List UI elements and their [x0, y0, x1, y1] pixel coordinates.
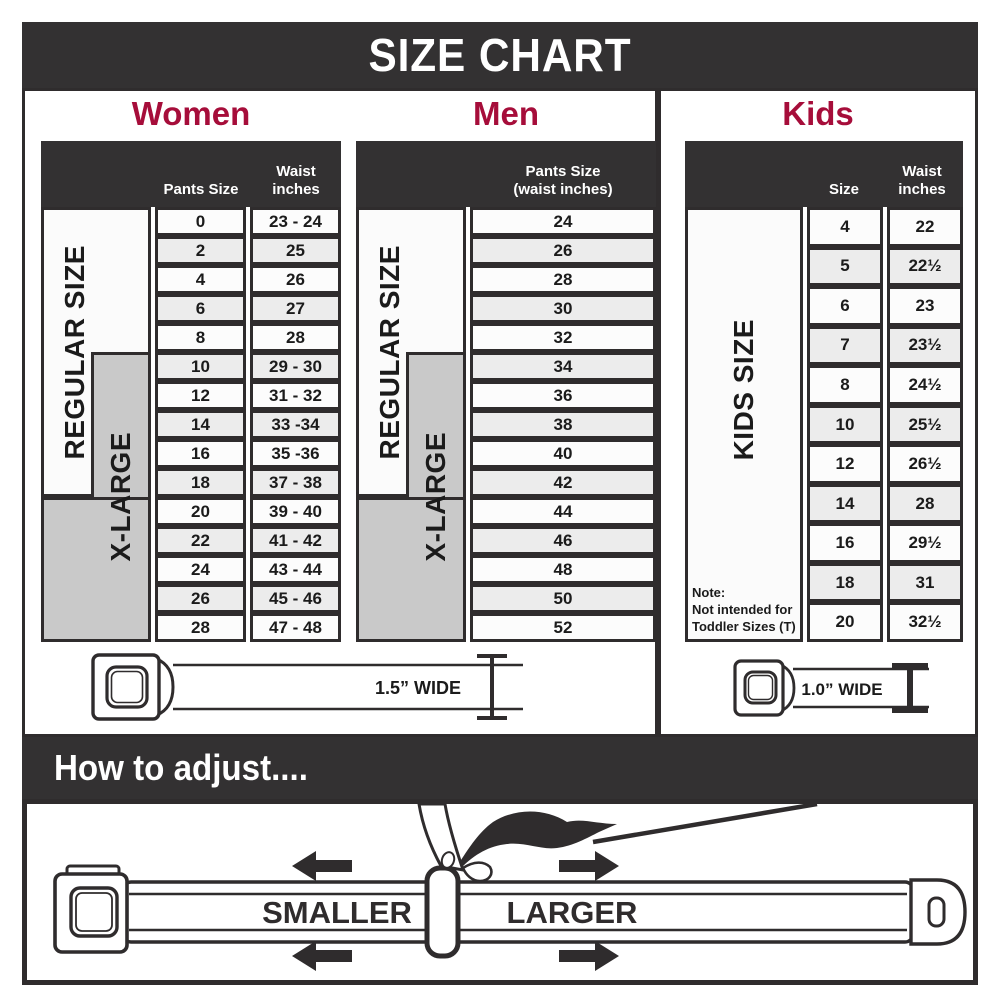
kids-table-header: Size Waist inches — [685, 141, 963, 207]
waist-cell: 35 -36 — [250, 439, 341, 468]
arrow-right-icon — [559, 851, 619, 881]
table-row: 38 — [470, 410, 656, 439]
pants-size-cell: 26 — [155, 584, 246, 613]
table-row: 50 — [470, 584, 656, 613]
size-chart-title-bar: SIZE CHART — [22, 22, 978, 88]
pants-size-cell: 48 — [470, 555, 656, 584]
waist-cell: 25½ — [887, 405, 963, 445]
men-table: Pants Size (waist inches) REGULAR SIZE X… — [356, 141, 656, 642]
men-regular-size-label: REGULAR SIZE — [374, 245, 406, 459]
table-row: 0 23 - 24 — [155, 207, 341, 236]
kids-panel: Kids Size Waist inches KIDS SIZE Note: N… — [658, 88, 978, 737]
belt-buckle-icon — [93, 655, 173, 719]
table-row: 7 23½ — [807, 326, 963, 366]
waist-cell: 29 - 30 — [250, 352, 341, 381]
waist-cell: 25 — [250, 236, 341, 265]
table-row: 12 31 - 32 — [155, 381, 341, 410]
larger-label: LARGER — [507, 895, 638, 930]
pants-size-cell: 12 — [155, 381, 246, 410]
women-table-body: 0 23 - 24 2 25 4 26 6 27 8 28 10 29 - 30 — [155, 207, 341, 642]
pants-size-cell: 4 — [155, 265, 246, 294]
smaller-label: SMALLER — [262, 895, 412, 930]
table-row: 12 26½ — [807, 444, 963, 484]
size-cell: 12 — [807, 444, 883, 484]
table-row: 22 41 - 42 — [155, 526, 341, 555]
waist-cell: 37 - 38 — [250, 468, 341, 497]
belt-buckle-icon — [735, 661, 794, 715]
table-row: 42 — [470, 468, 656, 497]
pants-size-cell: 38 — [470, 410, 656, 439]
size-cell: 16 — [807, 523, 883, 563]
table-row: 5 22½ — [807, 247, 963, 287]
kids-note: Note: Not intended for Toddler Sizes (T) — [692, 585, 801, 636]
pants-size-cell: 18 — [155, 468, 246, 497]
belt-strap — [173, 665, 523, 709]
kids-table: Size Waist inches KIDS SIZE Note: Not in… — [685, 141, 963, 642]
table-row: 28 47 - 48 — [155, 613, 341, 642]
table-row: 4 26 — [155, 265, 341, 294]
women-xlarge-label: X-LARGE — [105, 432, 137, 562]
waist-cell: 26½ — [887, 444, 963, 484]
table-row: 44 — [470, 497, 656, 526]
pants-size-cell: 8 — [155, 323, 246, 352]
waist-cell: 27 — [250, 294, 341, 323]
women-waist-header: Waist inches — [251, 163, 341, 201]
kids-waist-header: Waist inches — [885, 163, 959, 201]
table-row: 30 — [470, 294, 656, 323]
adjust-illustration: SMALLER LARGER — [27, 804, 973, 980]
women-regular-size-label: REGULAR SIZE — [59, 245, 91, 459]
men-size-bands: REGULAR SIZE X-LARGE — [356, 207, 466, 642]
pants-size-cell: 28 — [155, 613, 246, 642]
table-row: 28 — [470, 265, 656, 294]
pants-size-cell: 42 — [470, 468, 656, 497]
arrow-left-icon — [292, 851, 352, 881]
men-xlarge-label: X-LARGE — [420, 432, 452, 562]
table-row: 14 33 -34 — [155, 410, 341, 439]
women-table: Pants Size Waist inches REGULAR SIZE X-L… — [41, 141, 341, 642]
arrow-right-icon — [559, 941, 619, 971]
pants-size-cell: 46 — [470, 526, 656, 555]
waist-cell: 31 - 32 — [250, 381, 341, 410]
table-row: 6 27 — [155, 294, 341, 323]
adults-panel: Women Men Pants Size Waist inches REGULA… — [22, 88, 658, 737]
table-row: 14 28 — [807, 484, 963, 524]
size-chart-title: SIZE CHART — [368, 28, 631, 82]
pants-size-cell: 10 — [155, 352, 246, 381]
size-cell: 5 — [807, 247, 883, 287]
waist-cell: 23 — [887, 286, 963, 326]
how-to-adjust-bar: How to adjust.... — [22, 737, 978, 799]
size-cell: 8 — [807, 365, 883, 405]
pants-size-cell: 40 — [470, 439, 656, 468]
waist-cell: 41 - 42 — [250, 526, 341, 555]
waist-cell: 23 - 24 — [250, 207, 341, 236]
table-row: 52 — [470, 613, 656, 642]
table-row: 10 25½ — [807, 405, 963, 445]
men-table-body: 24 26 28 30 32 34 36 38 40 42 — [470, 207, 656, 642]
width-dimension-icon — [892, 663, 928, 713]
waist-cell: 23½ — [887, 326, 963, 366]
table-row: 24 — [470, 207, 656, 236]
table-row: 48 — [470, 555, 656, 584]
waist-cell: 47 - 48 — [250, 613, 341, 642]
pants-size-cell: 22 — [155, 526, 246, 555]
adult-belt-width-label: 1.5” WIDE — [375, 678, 461, 698]
pants-size-cell: 28 — [470, 265, 656, 294]
size-cell: 6 — [807, 286, 883, 326]
how-to-adjust-heading: How to adjust.... — [54, 747, 308, 789]
waist-cell: 22 — [887, 207, 963, 247]
table-row: 8 24½ — [807, 365, 963, 405]
belt-tip — [911, 880, 965, 944]
table-row: 6 23 — [807, 286, 963, 326]
kids-size-band: KIDS SIZE Note: Not intended for Toddler… — [685, 207, 803, 642]
waist-cell: 32½ — [887, 602, 963, 642]
waist-cell: 26 — [250, 265, 341, 294]
kids-belt-illustration: 1.0” WIDE — [729, 651, 964, 726]
men-table-header: Pants Size (waist inches) — [356, 141, 656, 207]
waist-cell: 31 — [887, 563, 963, 603]
waist-cell: 45 - 46 — [250, 584, 341, 613]
pants-size-cell: 32 — [470, 323, 656, 352]
size-cell: 7 — [807, 326, 883, 366]
belt-buckle-icon — [55, 866, 127, 952]
pants-size-cell: 26 — [470, 236, 656, 265]
kids-size-label: KIDS SIZE — [728, 319, 760, 460]
men-heading: Men — [356, 95, 656, 133]
kids-size-header: Size — [807, 181, 881, 200]
kids-heading: Kids — [661, 95, 975, 133]
kids-belt-width-label: 1.0” WIDE — [801, 680, 882, 699]
pants-size-cell: 44 — [470, 497, 656, 526]
table-row: 26 — [470, 236, 656, 265]
size-cell: 10 — [807, 405, 883, 445]
pants-size-cell: 50 — [470, 584, 656, 613]
table-row: 26 45 - 46 — [155, 584, 341, 613]
table-row: 46 — [470, 526, 656, 555]
pants-size-cell: 2 — [155, 236, 246, 265]
hand-illustration — [419, 804, 817, 881]
women-size-bands: REGULAR SIZE X-LARGE — [41, 207, 151, 642]
pants-size-cell: 30 — [470, 294, 656, 323]
size-chart-page: SIZE CHART Women Men Pants Size Waist in… — [0, 0, 1000, 1000]
size-cell: 18 — [807, 563, 883, 603]
pants-size-cell: 52 — [470, 613, 656, 642]
table-row: 32 — [470, 323, 656, 352]
belt-slider — [427, 868, 458, 956]
waist-cell: 22½ — [887, 247, 963, 287]
pants-size-cell: 6 — [155, 294, 246, 323]
pants-size-cell: 34 — [470, 352, 656, 381]
women-heading: Women — [41, 95, 341, 133]
waist-cell: 33 -34 — [250, 410, 341, 439]
table-row: 34 — [470, 352, 656, 381]
arrow-left-icon — [292, 941, 352, 971]
table-row: 20 32½ — [807, 602, 963, 642]
table-row: 2 25 — [155, 236, 341, 265]
table-row: 20 39 - 40 — [155, 497, 341, 526]
table-row: 18 31 — [807, 563, 963, 603]
kids-table-body: 4 22 5 22½ 6 23 7 23½ 8 24½ 10 25½ — [807, 207, 963, 642]
pants-size-cell: 14 — [155, 410, 246, 439]
pants-size-cell: 20 — [155, 497, 246, 526]
waist-cell: 29½ — [887, 523, 963, 563]
adjust-illustration-panel: SMALLER LARGER — [22, 799, 978, 985]
table-row: 36 — [470, 381, 656, 410]
pants-size-cell: 24 — [155, 555, 246, 584]
waist-cell: 39 - 40 — [250, 497, 341, 526]
men-pants-size-header: Pants Size (waist inches) — [470, 163, 656, 201]
women-table-header: Pants Size Waist inches — [41, 141, 341, 207]
size-cell: 14 — [807, 484, 883, 524]
waist-cell: 24½ — [887, 365, 963, 405]
waist-cell: 43 - 44 — [250, 555, 341, 584]
pants-size-cell: 24 — [470, 207, 656, 236]
pants-size-cell: 0 — [155, 207, 246, 236]
table-row: 16 29½ — [807, 523, 963, 563]
waist-cell: 28 — [250, 323, 341, 352]
pants-size-cell: 36 — [470, 381, 656, 410]
table-row: 24 43 - 44 — [155, 555, 341, 584]
table-row: 8 28 — [155, 323, 341, 352]
table-row: 10 29 - 30 — [155, 352, 341, 381]
waist-cell: 28 — [887, 484, 963, 524]
pants-size-cell: 16 — [155, 439, 246, 468]
size-cell: 20 — [807, 602, 883, 642]
adult-belt-illustration: 1.5” WIDE — [85, 649, 530, 727]
size-cell: 4 — [807, 207, 883, 247]
women-pants-size-header: Pants Size — [155, 181, 247, 200]
table-row: 18 37 - 38 — [155, 468, 341, 497]
table-row: 40 — [470, 439, 656, 468]
table-row: 4 22 — [807, 207, 963, 247]
table-row: 16 35 -36 — [155, 439, 341, 468]
